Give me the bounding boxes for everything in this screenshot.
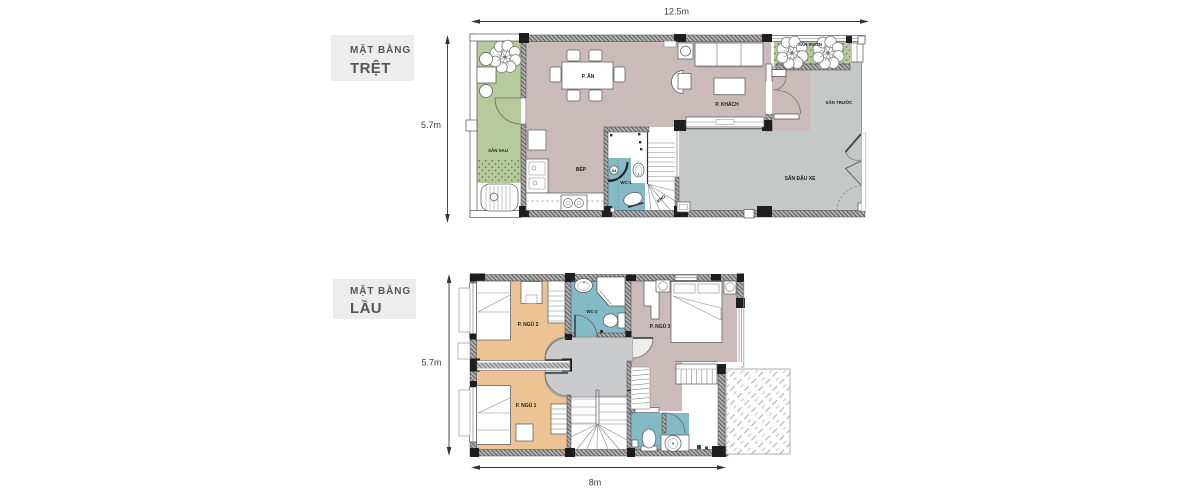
svg-text:LẦU: LẦU (350, 300, 382, 317)
svg-text:P. NGỦ 3: P. NGỦ 3 (650, 323, 671, 330)
svg-text:SÂN ĐẬU XE: SÂN ĐẬU XE (785, 175, 817, 182)
svg-text:12.5m: 12.5m (664, 7, 689, 17)
svg-text:SÂN SAU: SÂN SAU (488, 148, 508, 153)
svg-text:P. NGỦ 2: P. NGỦ 2 (518, 321, 539, 328)
svg-text:BẾP: BẾP (576, 166, 587, 173)
svg-text:MẶT BẰNG: MẶT BẰNG (350, 284, 411, 297)
svg-text:5.7m: 5.7m (421, 358, 441, 368)
svg-text:SÂN TRƯỚC: SÂN TRƯỚC (826, 100, 854, 105)
svg-text:5.7m: 5.7m (421, 120, 441, 130)
svg-text:TRỆT: TRỆT (350, 59, 391, 77)
svg-text:MẶT BẰNG: MẶT BẰNG (350, 43, 411, 56)
svg-text:P. ĂN: P. ĂN (582, 73, 595, 80)
svg-text:8m: 8m (589, 478, 602, 488)
svg-text:WC-1: WC-1 (620, 180, 632, 185)
svg-text:WC-2: WC-2 (586, 309, 598, 314)
svg-text:P. KHÁCH: P. KHÁCH (715, 101, 739, 108)
svg-text:SÂN VƯỜN: SÂN VƯỜN (798, 42, 822, 47)
svg-text:P. NGỦ 1: P. NGỦ 1 (516, 402, 537, 409)
